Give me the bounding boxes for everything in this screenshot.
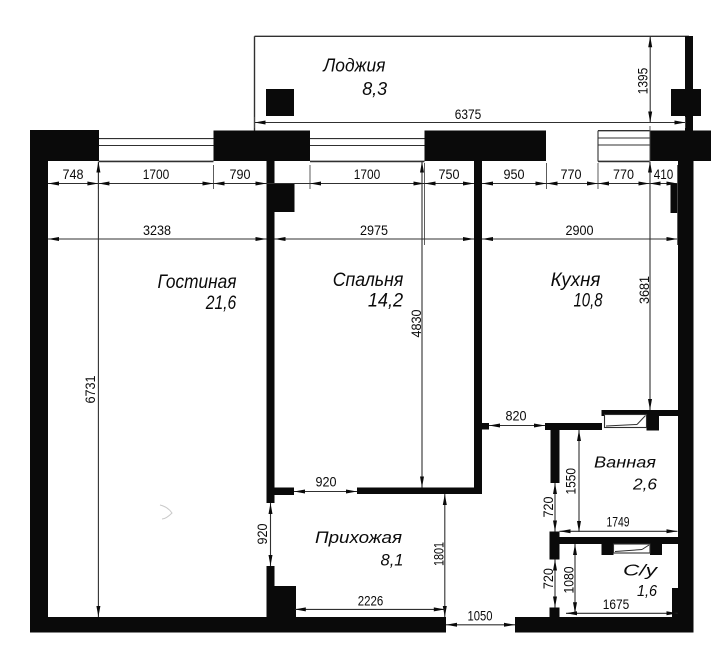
svg-text:1675: 1675: [603, 596, 630, 612]
svg-text:21,6: 21,6: [205, 293, 237, 314]
svg-text:Кухня: Кухня: [551, 270, 601, 291]
svg-text:Ванная: Ванная: [594, 455, 657, 472]
svg-text:1080: 1080: [560, 566, 576, 593]
svg-text:750: 750: [439, 166, 460, 182]
svg-text:6731: 6731: [82, 375, 98, 403]
svg-text:920: 920: [316, 474, 337, 490]
svg-text:Спальня: Спальня: [333, 270, 404, 291]
svg-text:1700: 1700: [143, 166, 170, 182]
svg-text:820: 820: [506, 408, 527, 424]
svg-text:770: 770: [561, 166, 582, 182]
svg-text:720: 720: [540, 496, 556, 517]
svg-text:1749: 1749: [607, 514, 630, 530]
svg-text:770: 770: [613, 166, 634, 182]
svg-text:1,6: 1,6: [637, 583, 657, 600]
svg-text:1700: 1700: [354, 166, 381, 182]
svg-text:8,1: 8,1: [381, 551, 404, 570]
svg-text:410: 410: [654, 166, 674, 182]
svg-text:920: 920: [254, 523, 270, 544]
svg-text:950: 950: [504, 166, 525, 182]
svg-text:720: 720: [540, 568, 556, 589]
svg-text:Прихожая: Прихожая: [315, 528, 402, 547]
svg-text:3681: 3681: [636, 276, 652, 304]
svg-text:14,2: 14,2: [368, 291, 404, 312]
svg-text:6375: 6375: [455, 106, 482, 122]
svg-text:8,3: 8,3: [362, 79, 387, 99]
svg-text:Лоджия: Лоджия: [322, 56, 385, 76]
svg-text:1050: 1050: [468, 608, 493, 624]
svg-text:2900: 2900: [566, 222, 594, 238]
svg-text:4830: 4830: [408, 309, 424, 337]
svg-text:2226: 2226: [358, 593, 384, 609]
svg-text:1395: 1395: [635, 68, 651, 95]
svg-text:1550: 1550: [563, 468, 579, 495]
svg-text:2,6: 2,6: [632, 477, 657, 494]
svg-text:790: 790: [230, 166, 251, 182]
svg-text:2975: 2975: [360, 222, 388, 238]
svg-text:1801: 1801: [431, 542, 447, 566]
svg-text:Гостиная: Гостиная: [158, 272, 237, 293]
svg-text:748: 748: [63, 166, 84, 182]
svg-text:3238: 3238: [143, 222, 171, 238]
svg-text:С/у: С/у: [623, 563, 658, 580]
svg-text:10,8: 10,8: [574, 291, 603, 312]
